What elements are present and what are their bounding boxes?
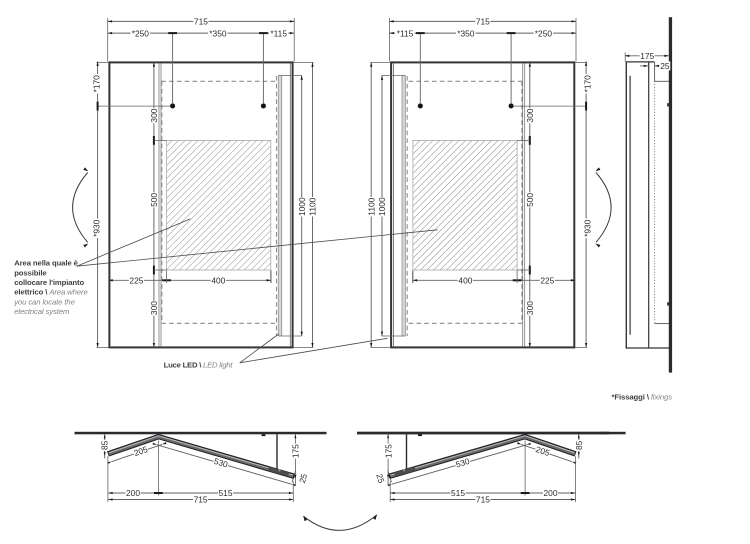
svg-text:possibile: possibile: [14, 268, 47, 277]
svg-text:*350: *350: [209, 28, 227, 38]
svg-text:500: 500: [525, 193, 535, 207]
svg-text:1100: 1100: [308, 197, 318, 215]
svg-text:300: 300: [149, 108, 159, 122]
svg-text:175: 175: [640, 51, 654, 61]
svg-text:300: 300: [525, 108, 535, 122]
svg-text:Luce LED \ LED light: Luce LED \ LED light: [164, 361, 234, 370]
svg-text:515: 515: [219, 488, 233, 498]
svg-text:85: 85: [574, 440, 584, 450]
svg-text:*115: *115: [270, 28, 287, 38]
svg-text:collocare l'impianto: collocare l'impianto: [14, 278, 84, 287]
svg-text:400: 400: [211, 275, 225, 285]
svg-text:1000: 1000: [377, 197, 387, 216]
svg-text:715: 715: [476, 17, 490, 27]
svg-text:225: 225: [540, 275, 554, 285]
svg-text:200: 200: [544, 488, 558, 498]
svg-text:*930: *930: [92, 219, 102, 237]
svg-text:300: 300: [525, 301, 535, 315]
svg-text:715: 715: [194, 17, 208, 27]
svg-text:*170: *170: [582, 75, 592, 93]
svg-text:elettrico \ Area where: elettrico \ Area where: [14, 288, 87, 297]
svg-text:Area nella quale è: Area nella quale è: [14, 259, 78, 268]
svg-text:*350: *350: [457, 28, 475, 38]
svg-text:85: 85: [100, 440, 110, 450]
svg-text:175: 175: [291, 444, 301, 458]
svg-text:*250: *250: [132, 28, 150, 38]
svg-text:175: 175: [383, 444, 393, 458]
svg-text:200: 200: [126, 488, 140, 498]
svg-text:*930: *930: [582, 219, 592, 237]
svg-text:you can locate the: you can locate the: [13, 297, 75, 306]
svg-text:25: 25: [660, 61, 670, 71]
svg-text:*250: *250: [535, 28, 553, 38]
svg-text:1100: 1100: [366, 197, 376, 215]
svg-text:*Fissaggi \ fixings: *Fissaggi \ fixings: [612, 392, 673, 401]
svg-text:electrical system: electrical system: [14, 307, 70, 316]
svg-text:500: 500: [149, 193, 159, 207]
svg-text:300: 300: [149, 301, 159, 315]
svg-text:225: 225: [129, 275, 143, 285]
svg-text:1000: 1000: [297, 197, 307, 216]
svg-text:*115: *115: [397, 28, 414, 38]
svg-text:*170: *170: [92, 75, 102, 93]
svg-text:515: 515: [451, 488, 465, 498]
svg-text:400: 400: [458, 275, 472, 285]
svg-text:715: 715: [194, 495, 208, 505]
svg-text:715: 715: [476, 495, 490, 505]
